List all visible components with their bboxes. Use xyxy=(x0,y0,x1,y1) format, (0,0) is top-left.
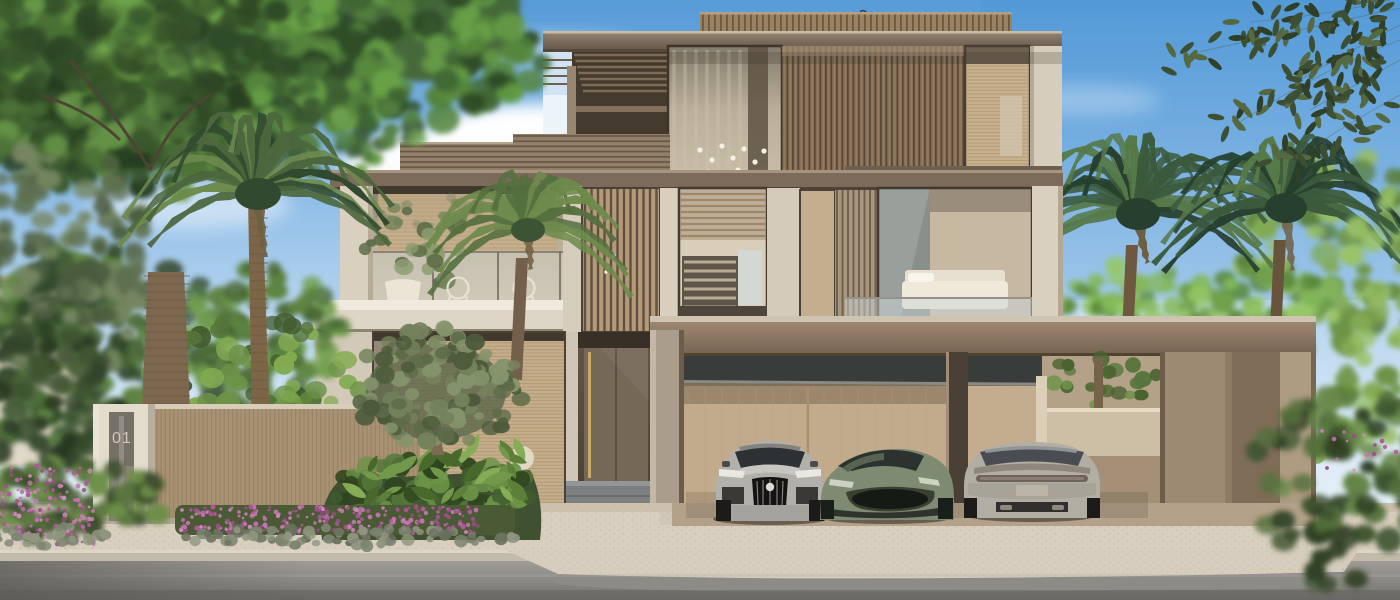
svg-text:01: 01 xyxy=(112,430,132,447)
